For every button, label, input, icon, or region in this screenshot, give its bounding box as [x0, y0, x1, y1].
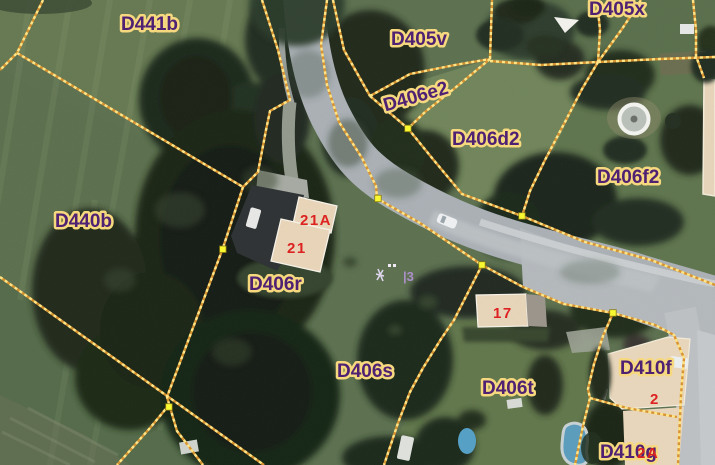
svg-text:17: 17	[493, 305, 513, 322]
svg-text:2A: 2A	[637, 445, 659, 462]
svg-text:D406t: D406t	[482, 378, 534, 399]
svg-text:D406f2: D406f2	[597, 167, 659, 188]
svg-text:|3: |3	[403, 269, 414, 284]
svg-text:D406r: D406r	[249, 274, 302, 295]
svg-text:D440b: D440b	[55, 211, 112, 232]
svg-text:D405v: D405v	[391, 29, 447, 50]
svg-text:D406s: D406s	[337, 361, 393, 382]
svg-text:D406d2: D406d2	[452, 129, 520, 150]
svg-text:D441b: D441b	[121, 14, 178, 35]
svg-text:2: 2	[650, 391, 660, 408]
svg-text:21A: 21A	[300, 212, 332, 229]
svg-text:21: 21	[287, 240, 307, 257]
svg-text:D410f: D410f	[620, 358, 672, 379]
svg-text:D405x: D405x	[589, 0, 645, 20]
